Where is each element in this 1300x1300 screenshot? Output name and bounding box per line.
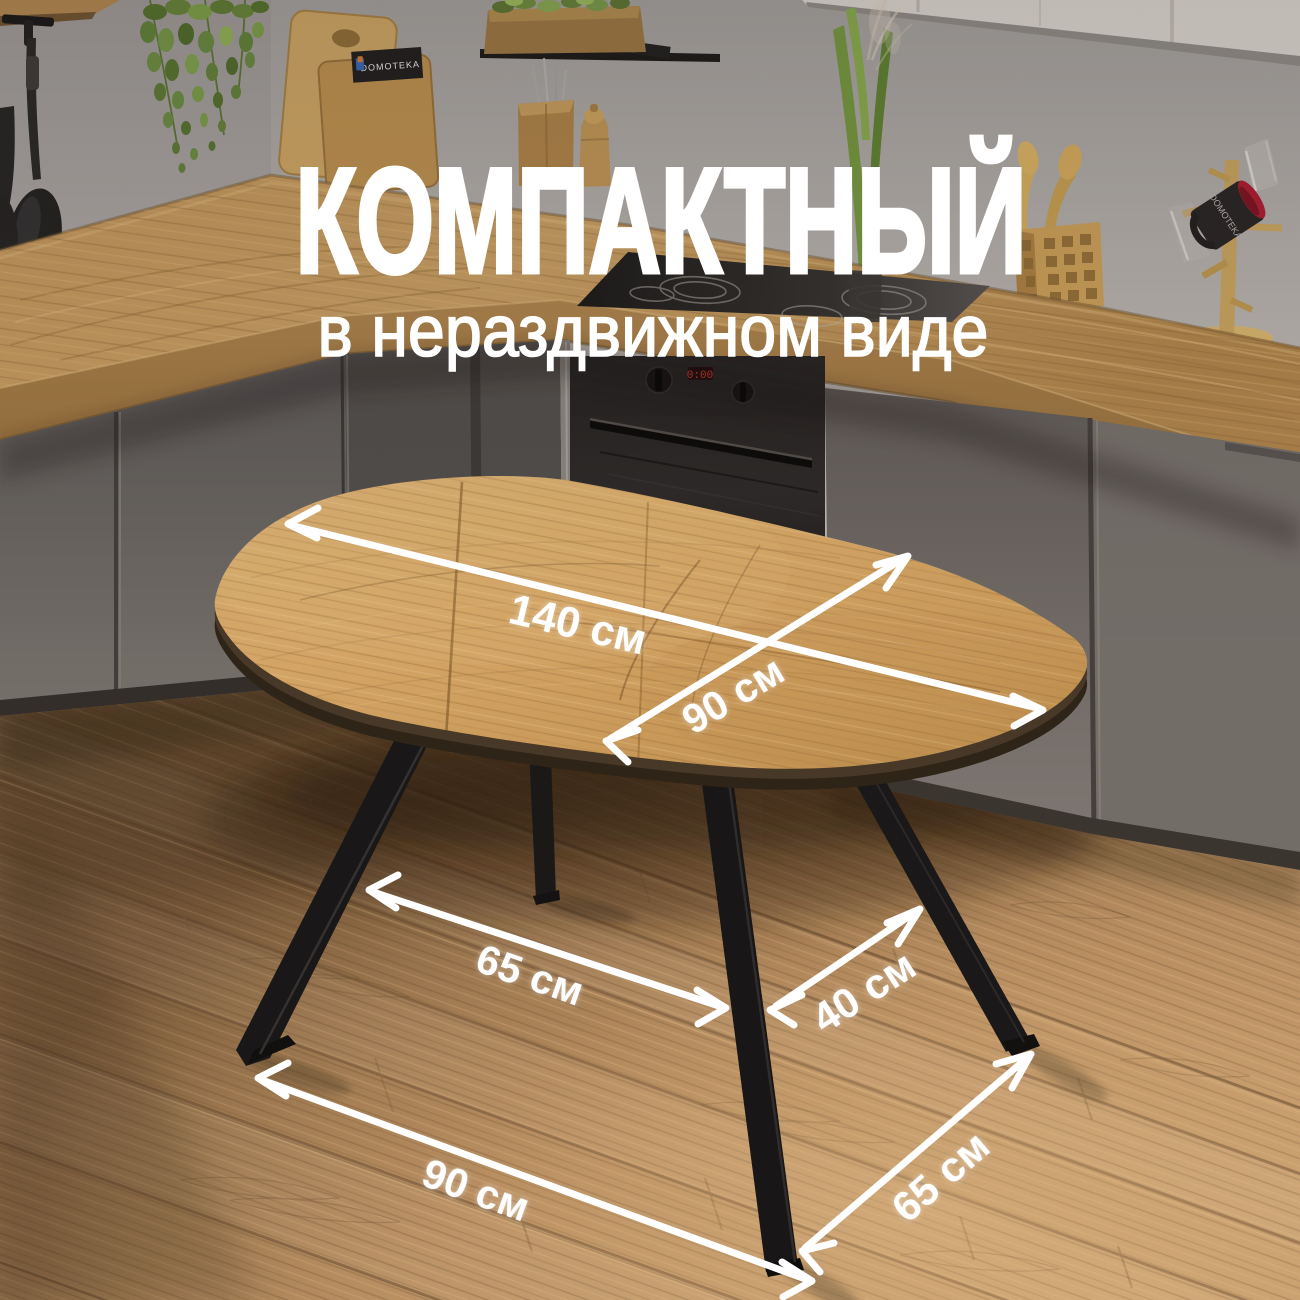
svg-text:КОМПАКТНЫЙ: КОМПАКТНЫЙ: [296, 137, 1027, 304]
svg-text:в нераздвижном виде: в нераздвижном виде: [318, 292, 989, 372]
